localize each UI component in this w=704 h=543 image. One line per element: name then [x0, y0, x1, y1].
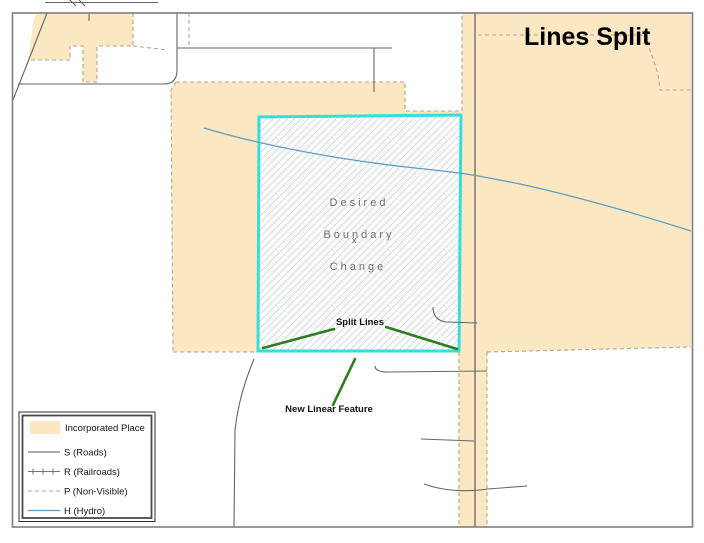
legend: Incorporated Place S (Roads) R (Railroad…: [19, 412, 155, 522]
incorporated-place-swatch: [30, 421, 60, 434]
legend-item-label: R (Railroads): [64, 467, 120, 478]
split-lines-label: Split Lines: [336, 317, 384, 328]
region-label-desired: Desired: [330, 197, 389, 209]
region-label-boundary: Boundary: [323, 229, 394, 241]
map-svg: Desired Boundary Change x Split Lines Ne…: [0, 0, 704, 543]
new-linear-feature-leader: [333, 359, 355, 405]
legend-item-incorporated-place: Incorporated Place: [30, 421, 145, 434]
lines-split-map-figure: Desired Boundary Change x Split Lines Ne…: [0, 0, 704, 543]
legend-item-label: H (Hydro): [64, 506, 105, 517]
incorporated-place-northwest: [28, 13, 133, 82]
region-label-change: Change: [330, 261, 387, 273]
nonvisible-boundary-segment: [133, 46, 168, 50]
legend-item-label: Incorporated Place: [65, 423, 145, 434]
node-marker: x: [352, 235, 357, 245]
map-title: Lines Split: [524, 23, 651, 51]
road-line: [234, 359, 254, 527]
legend-item-label: P (Non-Visible): [64, 487, 128, 498]
new-linear-feature-label: New Linear Feature: [285, 404, 373, 415]
legend-item-label: S (Roads): [64, 448, 107, 459]
